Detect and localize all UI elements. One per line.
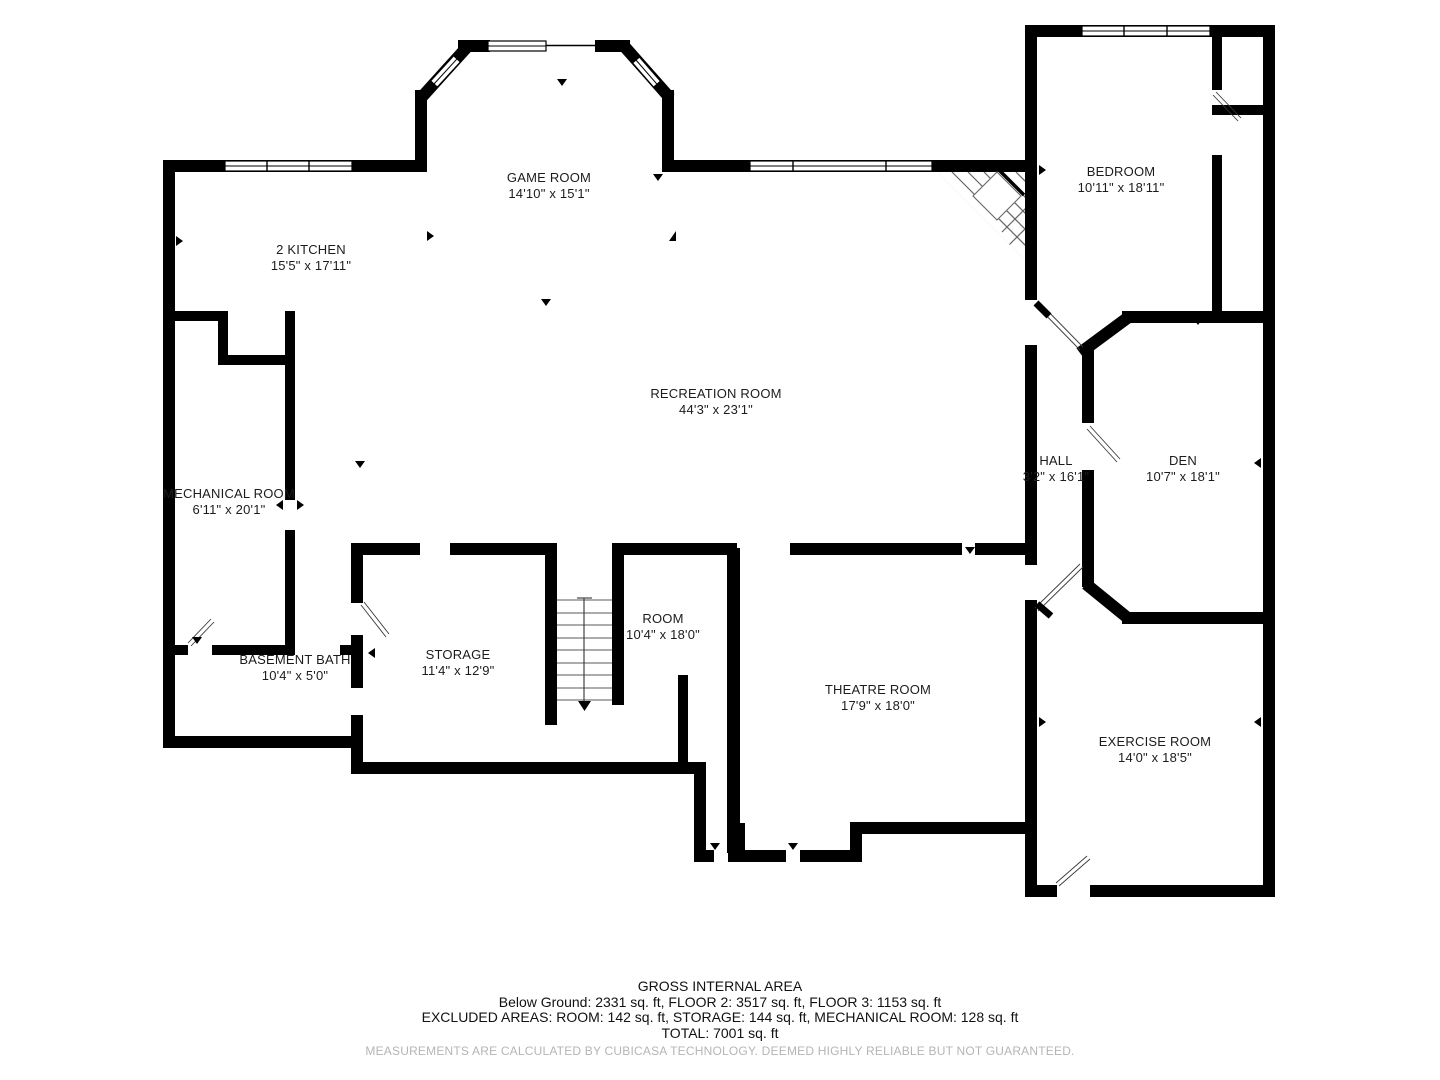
room-dimensions: 44'3" x 23'1": [650, 402, 781, 418]
stairs-winder: [920, 170, 1216, 372]
room-label-bedroom: BEDROOM 10'11" x 18'11": [1078, 164, 1165, 195]
room-dimensions: 14'0" x 18'5": [1099, 750, 1211, 766]
measurement-disclaimer: MEASUREMENTS ARE CALCULATED BY CUBICASA …: [0, 1044, 1440, 1060]
room-label-room: ROOM 10'4" x 18'0": [626, 611, 700, 642]
room-label-theatre-room: THEATRE ROOM 17'9" x 18'0": [825, 682, 931, 713]
room-name: GAME ROOM: [507, 170, 591, 186]
floor-areas-line: Below Ground: 2331 sq. ft, FLOOR 2: 3517…: [0, 995, 1440, 1011]
room-name: HALL: [1023, 453, 1089, 469]
room-name: MECHANICAL ROOM: [163, 486, 295, 502]
room-dimensions: 14'10" x 15'1": [507, 186, 591, 202]
gross-internal-area-title: GROSS INTERNAL AREA: [0, 979, 1440, 995]
room-dimensions: 10'4" x 5'0": [239, 668, 350, 684]
room-name: STORAGE: [422, 647, 495, 663]
room-label-basement-bath: BASEMENT BATH 10'4" x 5'0": [239, 652, 350, 683]
room-dimensions: 10'11" x 18'11": [1078, 180, 1165, 196]
room-dimensions: 15'5" x 17'11": [271, 258, 351, 274]
room-name: EXERCISE ROOM: [1099, 734, 1211, 750]
room-dimensions: 10'4" x 18'0": [626, 627, 700, 643]
room-label-game-room: GAME ROOM 14'10" x 15'1": [507, 170, 591, 201]
walls: [163, 25, 1275, 897]
total-area-line: TOTAL: 7001 sq. ft: [0, 1026, 1440, 1042]
room-dimensions: 17'9" x 18'0": [825, 698, 931, 714]
room-label-hall: HALL 3'2" x 16'1": [1023, 453, 1089, 484]
room-name: BEDROOM: [1078, 164, 1165, 180]
room-name: DEN: [1146, 453, 1220, 469]
room-name: THEATRE ROOM: [825, 682, 931, 698]
floorplan-svg: [0, 0, 1440, 1080]
windows: [225, 26, 1210, 171]
diagonal-walls: [421, 46, 1130, 619]
room-dimensions: 3'2" x 16'1": [1023, 469, 1089, 485]
room-name: ROOM: [626, 611, 700, 627]
room-label-mechanical-room: MECHANICAL ROOM 6'11" x 20'1": [163, 486, 295, 517]
room-name: 2 KITCHEN: [271, 242, 351, 258]
room-label-den: DEN 10'7" x 18'1": [1146, 453, 1220, 484]
room-dimensions: 6'11" x 20'1": [163, 502, 295, 518]
room-dimensions: 11'4" x 12'9": [422, 663, 495, 679]
room-name: RECREATION ROOM: [650, 386, 781, 402]
room-name: BASEMENT BATH: [239, 652, 350, 668]
room-label-recreation-room: RECREATION ROOM 44'3" x 23'1": [650, 386, 781, 417]
room-label-storage: STORAGE 11'4" x 12'9": [422, 647, 495, 678]
stairs-down-arrow: [578, 701, 591, 711]
room-label-exercise-room: EXERCISE ROOM 14'0" x 18'5": [1099, 734, 1211, 765]
excluded-areas-line: EXCLUDED AREAS: ROOM: 142 sq. ft, STORAG…: [0, 1010, 1440, 1026]
floorplan-canvas: GAME ROOM 14'10" x 15'1" 2 KITCHEN 15'5"…: [0, 0, 1440, 1080]
area-summary: GROSS INTERNAL AREA Below Ground: 2331 s…: [0, 979, 1440, 1060]
stairs-straight: [557, 598, 612, 701]
room-label-2-kitchen: 2 KITCHEN 15'5" x 17'11": [271, 242, 351, 273]
room-dimensions: 10'7" x 18'1": [1146, 469, 1220, 485]
